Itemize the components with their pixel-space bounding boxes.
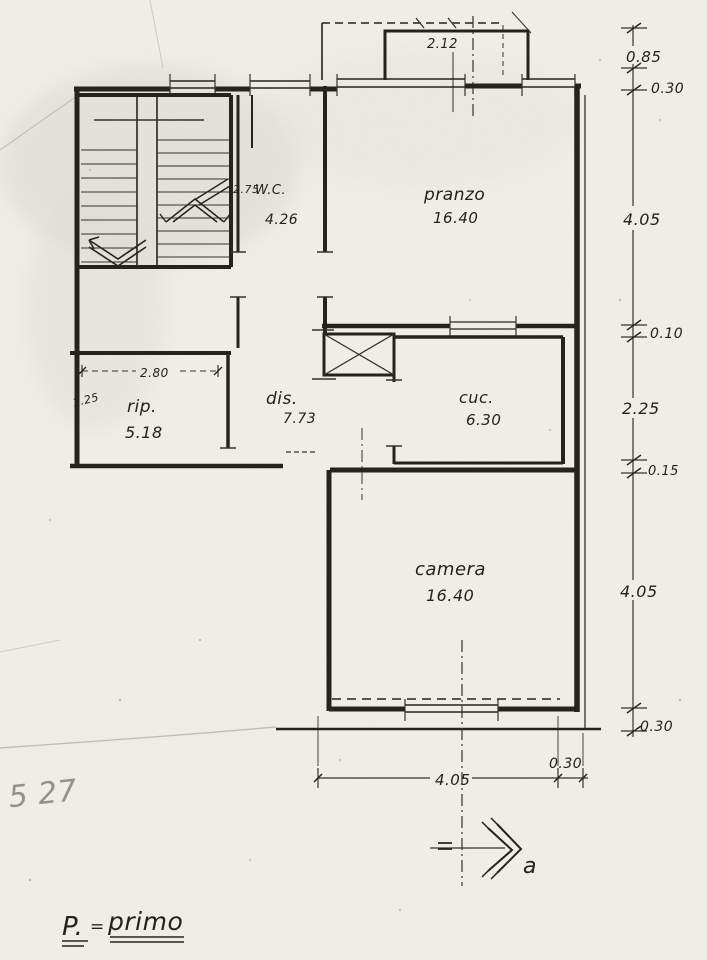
room-area-rip: 5.18 [125, 423, 163, 442]
room-area-wc: 4.26 [265, 212, 298, 228]
scan-stain [260, 50, 580, 190]
room-label-cuc: cuc. [459, 388, 494, 407]
scanned-floor-plan-sheet: 5 27 [0, 0, 707, 960]
paper-background: 5 27 [0, 0, 707, 960]
dim-label: 2.25 [622, 399, 660, 418]
dim-label: 0.15 [648, 464, 679, 479]
dim-label: 4.05 [435, 771, 470, 789]
room-area-dis: 7.73 [283, 411, 316, 427]
floor-equals: = [90, 917, 105, 937]
floor-name: primo [107, 907, 183, 936]
dim-label: 4.05 [623, 210, 661, 229]
dim-label: 0.10 [650, 326, 683, 342]
dim-label: 0.30 [640, 719, 673, 735]
room-label-dis: dis. [266, 389, 298, 409]
dim-label: 2.12 [427, 37, 458, 52]
dim-label: 0.85 [626, 48, 661, 66]
section-letter: a [523, 854, 537, 879]
room-label-wc: W.C. [255, 183, 286, 198]
faint-ghost-writing: 5 27 [7, 773, 79, 815]
room-label-camera: camera [415, 559, 486, 580]
room-area-cuc: 6.30 [466, 411, 501, 429]
dim-label: 0.30 [549, 756, 582, 772]
room-area-camera: 16.40 [426, 586, 474, 605]
dim-label: 4.05 [620, 582, 658, 601]
floor-code: P. [62, 912, 83, 942]
floor-plan-drawing: 5 27 [0, 0, 707, 960]
room-label-rip: rip. [127, 397, 157, 417]
dim-label: 0.30 [651, 81, 684, 97]
room-area-pranzo: 16.40 [433, 209, 478, 227]
dim-label: 2.80 [140, 366, 169, 380]
room-label-pranzo: pranzo [423, 185, 485, 205]
